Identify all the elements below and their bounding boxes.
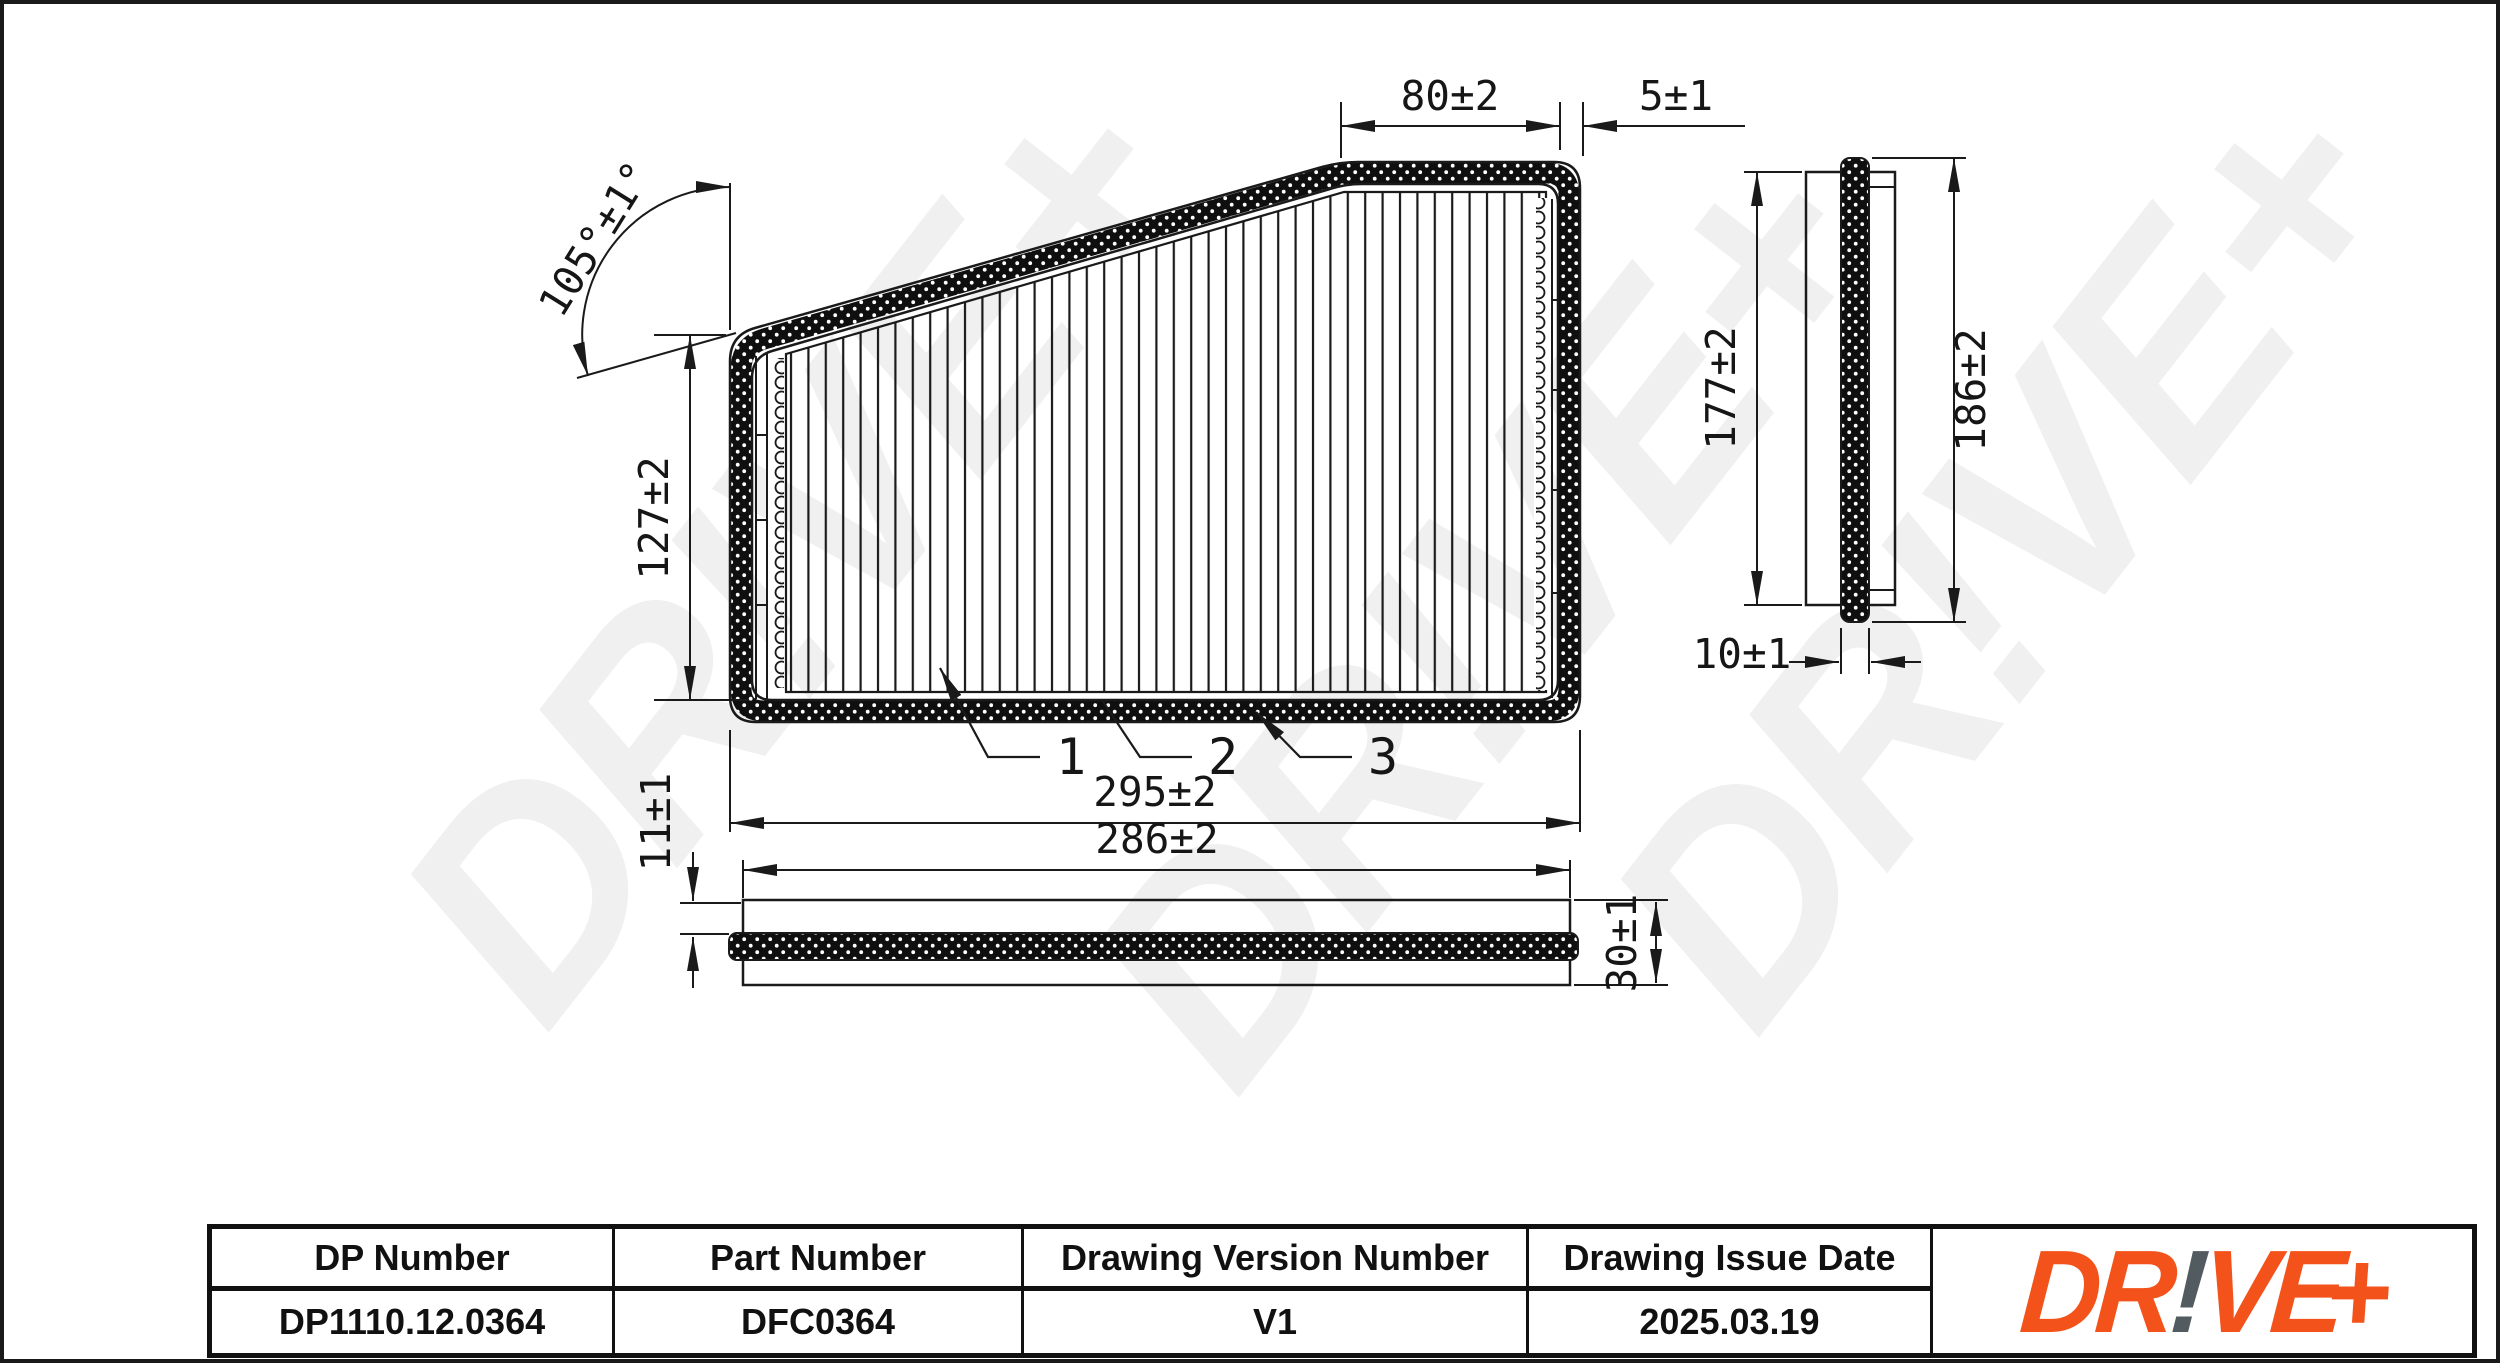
dim-side-frame-height: 177±2 <box>1697 172 1802 605</box>
left-pleat-edge-scallops <box>768 358 784 688</box>
dim-top-width-text: 80±2 <box>1401 72 1500 120</box>
dim-seal-offset: 5±1 <box>1583 72 1745 156</box>
dim-bottom-thickness: 30±1 <box>1574 894 1668 993</box>
dim-bottom-thickness-text: 30±1 <box>1598 894 1646 993</box>
right-pleat-edge-scallops <box>1534 198 1550 690</box>
pleated-media <box>786 192 1546 692</box>
title-block-header-drawing-version: Drawing Version Number <box>1024 1229 1529 1291</box>
dim-side-overall-height-text: 186±2 <box>1947 328 1995 451</box>
brand-logo: DR!VE+ <box>2016 1223 2389 1358</box>
title-block-header-dp-number: DP Number <box>212 1229 615 1291</box>
brand-logo-cell: DR!VE+ <box>1933 1229 2472 1353</box>
side-view <box>1806 158 1895 622</box>
dim-seal-offset-text: 5±1 <box>1639 72 1713 120</box>
logo-plus-icon: + <box>2320 1225 2389 1356</box>
dim-angle-text: 105°±1° <box>529 153 661 325</box>
title-block-header-part-number: Part Number <box>615 1229 1024 1291</box>
technical-drawing: 80±2 5±1 105°±1° 127±2 <box>0 0 2500 1363</box>
title-block-value-part-number: DFC0364 <box>615 1291 1024 1353</box>
title-block-value-dp-number: DP1110.12.0364 <box>212 1291 615 1353</box>
side-seal-strip <box>1841 158 1869 622</box>
dim-side-thickness-text: 10±1 <box>1693 630 1792 678</box>
dim-side-overall-height: 186±2 <box>1872 158 1995 622</box>
part-label-media: 1 <box>1056 728 1086 786</box>
part-label-frame: 2 <box>1208 728 1238 786</box>
part-label-seal: 3 <box>1368 728 1398 786</box>
dim-seal-drop: 11±1 <box>632 773 741 988</box>
drawing-page: DR!VE+ DR!VE+ DR!VE+ <box>0 0 2500 1363</box>
bottom-seal-strip <box>729 933 1578 960</box>
front-view <box>730 162 1580 722</box>
dim-side-thickness: 10±1 <box>1693 628 1921 678</box>
bottom-view <box>729 900 1578 985</box>
dim-top-width: 80±2 <box>1341 72 1560 158</box>
dim-inner-width: 286±2 <box>743 815 1570 898</box>
title-block-value-issue-date: 2025.03.19 <box>1529 1291 1933 1353</box>
title-block: DP Number Part Number Drawing Version Nu… <box>207 1224 2477 1358</box>
title-block-value-drawing-version: V1 <box>1024 1291 1529 1353</box>
dim-left-height-text: 127±2 <box>630 456 678 579</box>
logo-dr: DR <box>2016 1225 2175 1356</box>
dim-seal-drop-text: 11±1 <box>632 773 680 872</box>
dim-overall-width-text: 295±2 <box>1093 768 1216 816</box>
dim-side-frame-height-text: 177±2 <box>1697 326 1745 449</box>
dim-angle: 105°±1° <box>529 153 736 378</box>
title-block-header-issue-date: Drawing Issue Date <box>1529 1229 1933 1291</box>
dim-inner-width-text: 286±2 <box>1095 815 1218 863</box>
